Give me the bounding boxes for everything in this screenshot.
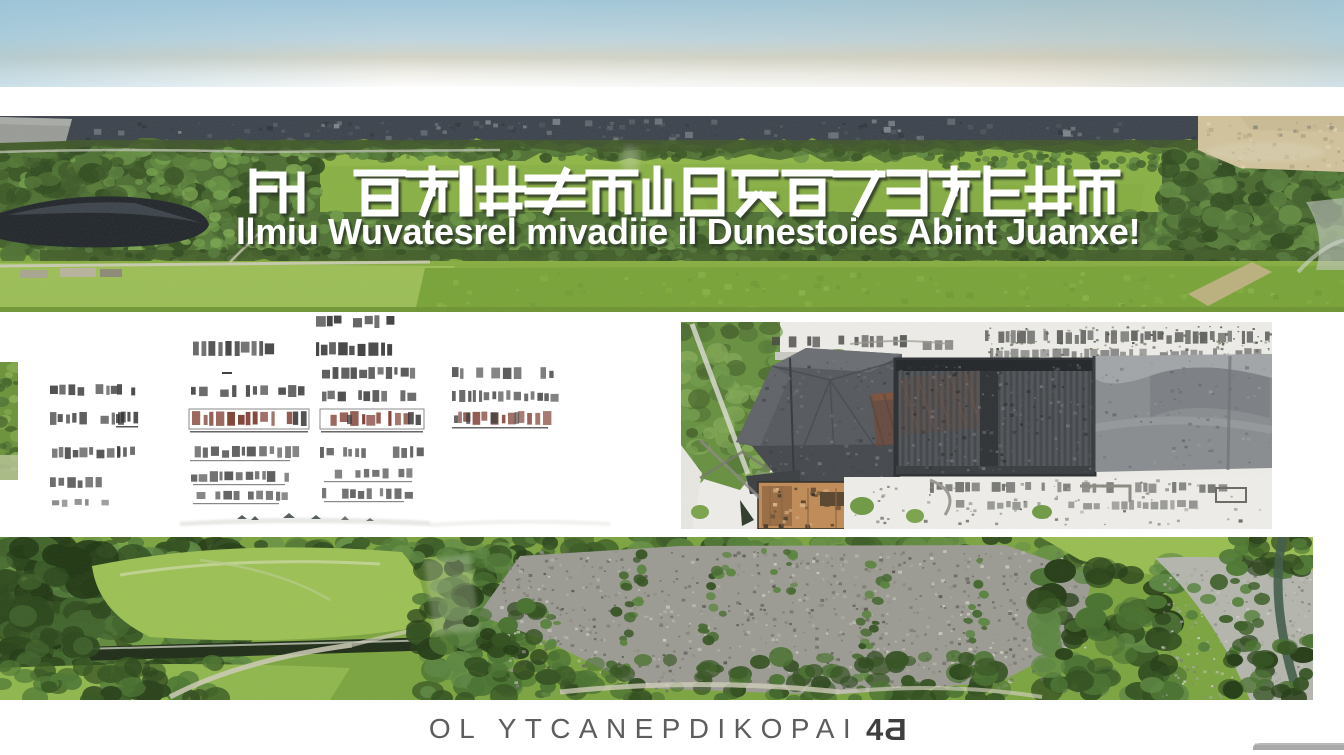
svg-text:llmiu Wuvatesrel mivadiie il D: llmiu Wuvatesrel mivadiie il Dunestoies … [236, 211, 1140, 252]
